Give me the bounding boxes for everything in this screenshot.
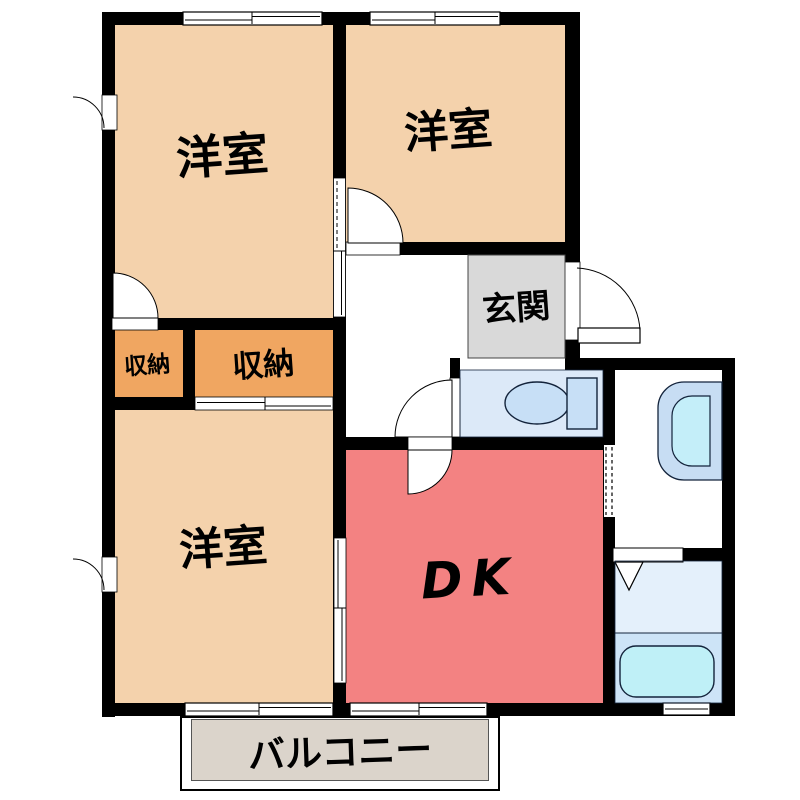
sliding-door-top-left-bedroom (334, 178, 346, 317)
door-left-wall-upper (73, 95, 117, 130)
opening-dk-washroom (604, 445, 615, 517)
label-balcony: バルコニー (247, 719, 433, 779)
window-bottom-bedroom (185, 703, 333, 716)
label-bedroom-top-left: 洋室 (174, 117, 270, 189)
label-bedroom-top-right: 洋室 (402, 92, 494, 162)
floorplan: 洋室 洋室 洋室 収納 収納 玄関 DK バルコニー (0, 0, 800, 800)
washbasin-icon (658, 382, 722, 480)
door-dk (408, 437, 452, 494)
door-top-right-bedroom (346, 188, 403, 255)
door-toilet (395, 378, 460, 437)
door-entrance (565, 262, 640, 343)
symbols-overlay (0, 0, 800, 800)
label-bedroom-bottom: 洋室 (177, 509, 269, 579)
label-closet-small: 収納 (123, 344, 171, 381)
label-entrance: 玄関 (480, 278, 551, 332)
sliding-door-bedroom-dk (334, 538, 346, 683)
window-top-left-bedroom (183, 12, 322, 25)
door-left-wall-lower (73, 557, 117, 592)
door-closet-small (112, 273, 158, 330)
window-bathroom (663, 703, 710, 715)
window-dk (350, 703, 487, 716)
sliding-door-closet (195, 397, 333, 410)
door-bathroom-folding (613, 548, 683, 590)
label-closet-large: 収納 (231, 337, 296, 386)
label-dining-kitchen: DK (419, 547, 520, 610)
bathtub-icon (620, 646, 714, 697)
toilet-icon (505, 378, 597, 429)
window-top-right-bedroom (370, 12, 500, 25)
